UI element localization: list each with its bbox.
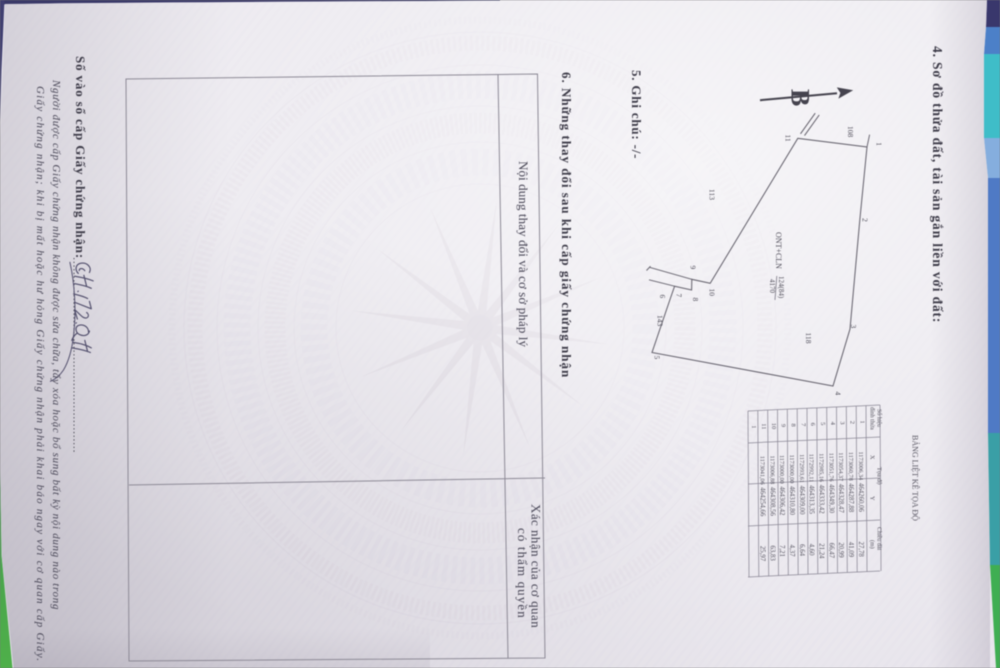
svg-text:1173041,06: 1173041,06 [759,456,765,485]
svg-text:4,60: 4,60 [808,544,815,556]
svg-text:1173054,37: 1173054,37 [837,452,843,481]
svg-text:118: 118 [804,333,813,344]
svg-text:25,97: 25,97 [759,546,766,562]
svg-text:21,24: 21,24 [818,543,825,559]
svg-text:7: 7 [675,294,684,298]
svg-text:41,09: 41,09 [847,542,854,558]
svg-text:Giấy chứng nhận; khi bị mất ho: Giấy chứng nhận; khi bị mất hoặc hư hỏng… [34,86,46,662]
svg-text:63,83: 63,83 [768,546,775,562]
svg-text:6,64: 6,64 [798,544,805,556]
svg-text:124(84): 124(84) [777,276,785,299]
svg-text:2: 2 [849,421,856,424]
svg-text:5: 5 [653,356,662,360]
svg-text:464254,66: 464254,66 [759,487,766,516]
svg-text:2: 2 [861,218,870,222]
svg-text:464287,88: 464287,88 [847,483,854,512]
svg-text:113: 113 [708,189,717,200]
svg-text:B: B [786,89,815,106]
svg-text:1172993,61: 1172993,61 [798,454,804,483]
svg-text:4: 4 [834,392,843,396]
svg-text:8: 8 [790,423,797,426]
svg-text:Nội dung thay đổi và cơ sở phá: Nội dung thay đổi và cơ sở pháp lý [516,161,531,348]
svg-text:464310,80: 464310,80 [788,486,795,515]
svg-text:464349,30: 464349,30 [827,484,834,513]
svg-text:có thẩm quyền: có thẩm quyền [515,528,530,619]
svg-text:1173000,00: 1173000,00 [778,455,784,484]
svg-text:5: 5 [819,422,826,425]
svg-text:10: 10 [708,289,717,297]
svg-text:464309,00: 464309,00 [798,486,805,515]
svg-text:1173006,34: 1173006,34 [857,452,863,481]
svg-text:1: 1 [874,142,883,146]
svg-text:1173000,00: 1173000,00 [788,455,794,484]
svg-text:4170: 4170 [768,279,776,294]
svg-text:464306,42: 464306,42 [778,487,785,516]
svg-text:X: X [869,455,876,460]
svg-text:11: 11 [760,423,767,429]
svg-text:11: 11 [784,135,793,142]
svg-text:(m): (m) [869,540,876,549]
svg-text:3: 3 [839,421,846,424]
svg-text:108: 108 [846,126,855,138]
svg-text:4,37: 4,37 [788,545,795,557]
svg-text:Chiều dài: Chiều dài [876,527,883,550]
svg-text:464308,56: 464308,56 [768,487,775,516]
svg-text:3: 3 [849,325,858,329]
svg-text:6. Những thay đổi sau khi cấp: 6. Những thay đổi sau khi cấp giấy chứng… [559,72,574,378]
svg-text:1173006,88: 1173006,88 [768,456,774,485]
svg-text:1: 1 [750,425,757,428]
svg-text:464260,06: 464260,06 [857,483,864,512]
svg-text:464328,47: 464328,47 [837,484,844,513]
svg-text:5. Ghi chú: -/-: 5. Ghi chú: -/- [629,70,644,159]
svg-text:66,47: 66,47 [827,543,834,559]
svg-text:Số hiệu: Số hiệu [876,409,883,427]
svg-text:ONT+CLN: ONT+CLN [774,232,783,269]
svg-text:BẢNG LIỆT KÊ TỌA ĐỘ: BẢNG LIỆT KÊ TỌA ĐỘ [911,435,921,521]
svg-text:Y: Y [869,496,876,501]
svg-text:464333,42: 464333,42 [818,485,825,514]
svg-text:27,78: 27,78 [857,542,864,558]
svg-text:6: 6 [658,295,667,299]
svg-text:9: 9 [689,266,698,270]
svg-text:1: 1 [858,420,865,423]
svg-text:4. Sơ đồ thửa đất, tài sản gắn: 4. Sơ đồ thửa đất, tài sản gắn liền với … [930,46,945,323]
svg-text:1173060,78: 1173060,78 [847,452,853,481]
svg-text:20,99: 20,99 [837,542,844,558]
svg-text:Tọa độ: Tọa độ [876,467,883,485]
svg-text:464313,35: 464313,35 [808,485,815,514]
svg-text:Người được cấp Giấy chứng nhận: Người được cấp Giấy chứng nhận không đượ… [50,79,62,610]
svg-text:1172992,11: 1172992,11 [808,454,814,483]
svg-text:8: 8 [691,298,700,302]
svg-text:143: 143 [656,315,665,327]
svg-text:7,21: 7,21 [778,545,785,557]
svg-text:9: 9 [780,424,787,427]
svg-text:10: 10 [770,423,777,430]
svg-text:1172985,16: 1172985,16 [818,453,824,482]
svg-text:đỉnh thửa: đỉnh thửa [869,407,875,430]
svg-text:1173051,76: 1173051,76 [827,453,833,482]
svg-text:Số vào sổ cấp Giấy chứng nhận:: Số vào sổ cấp Giấy chứng nhận: [73,56,88,259]
